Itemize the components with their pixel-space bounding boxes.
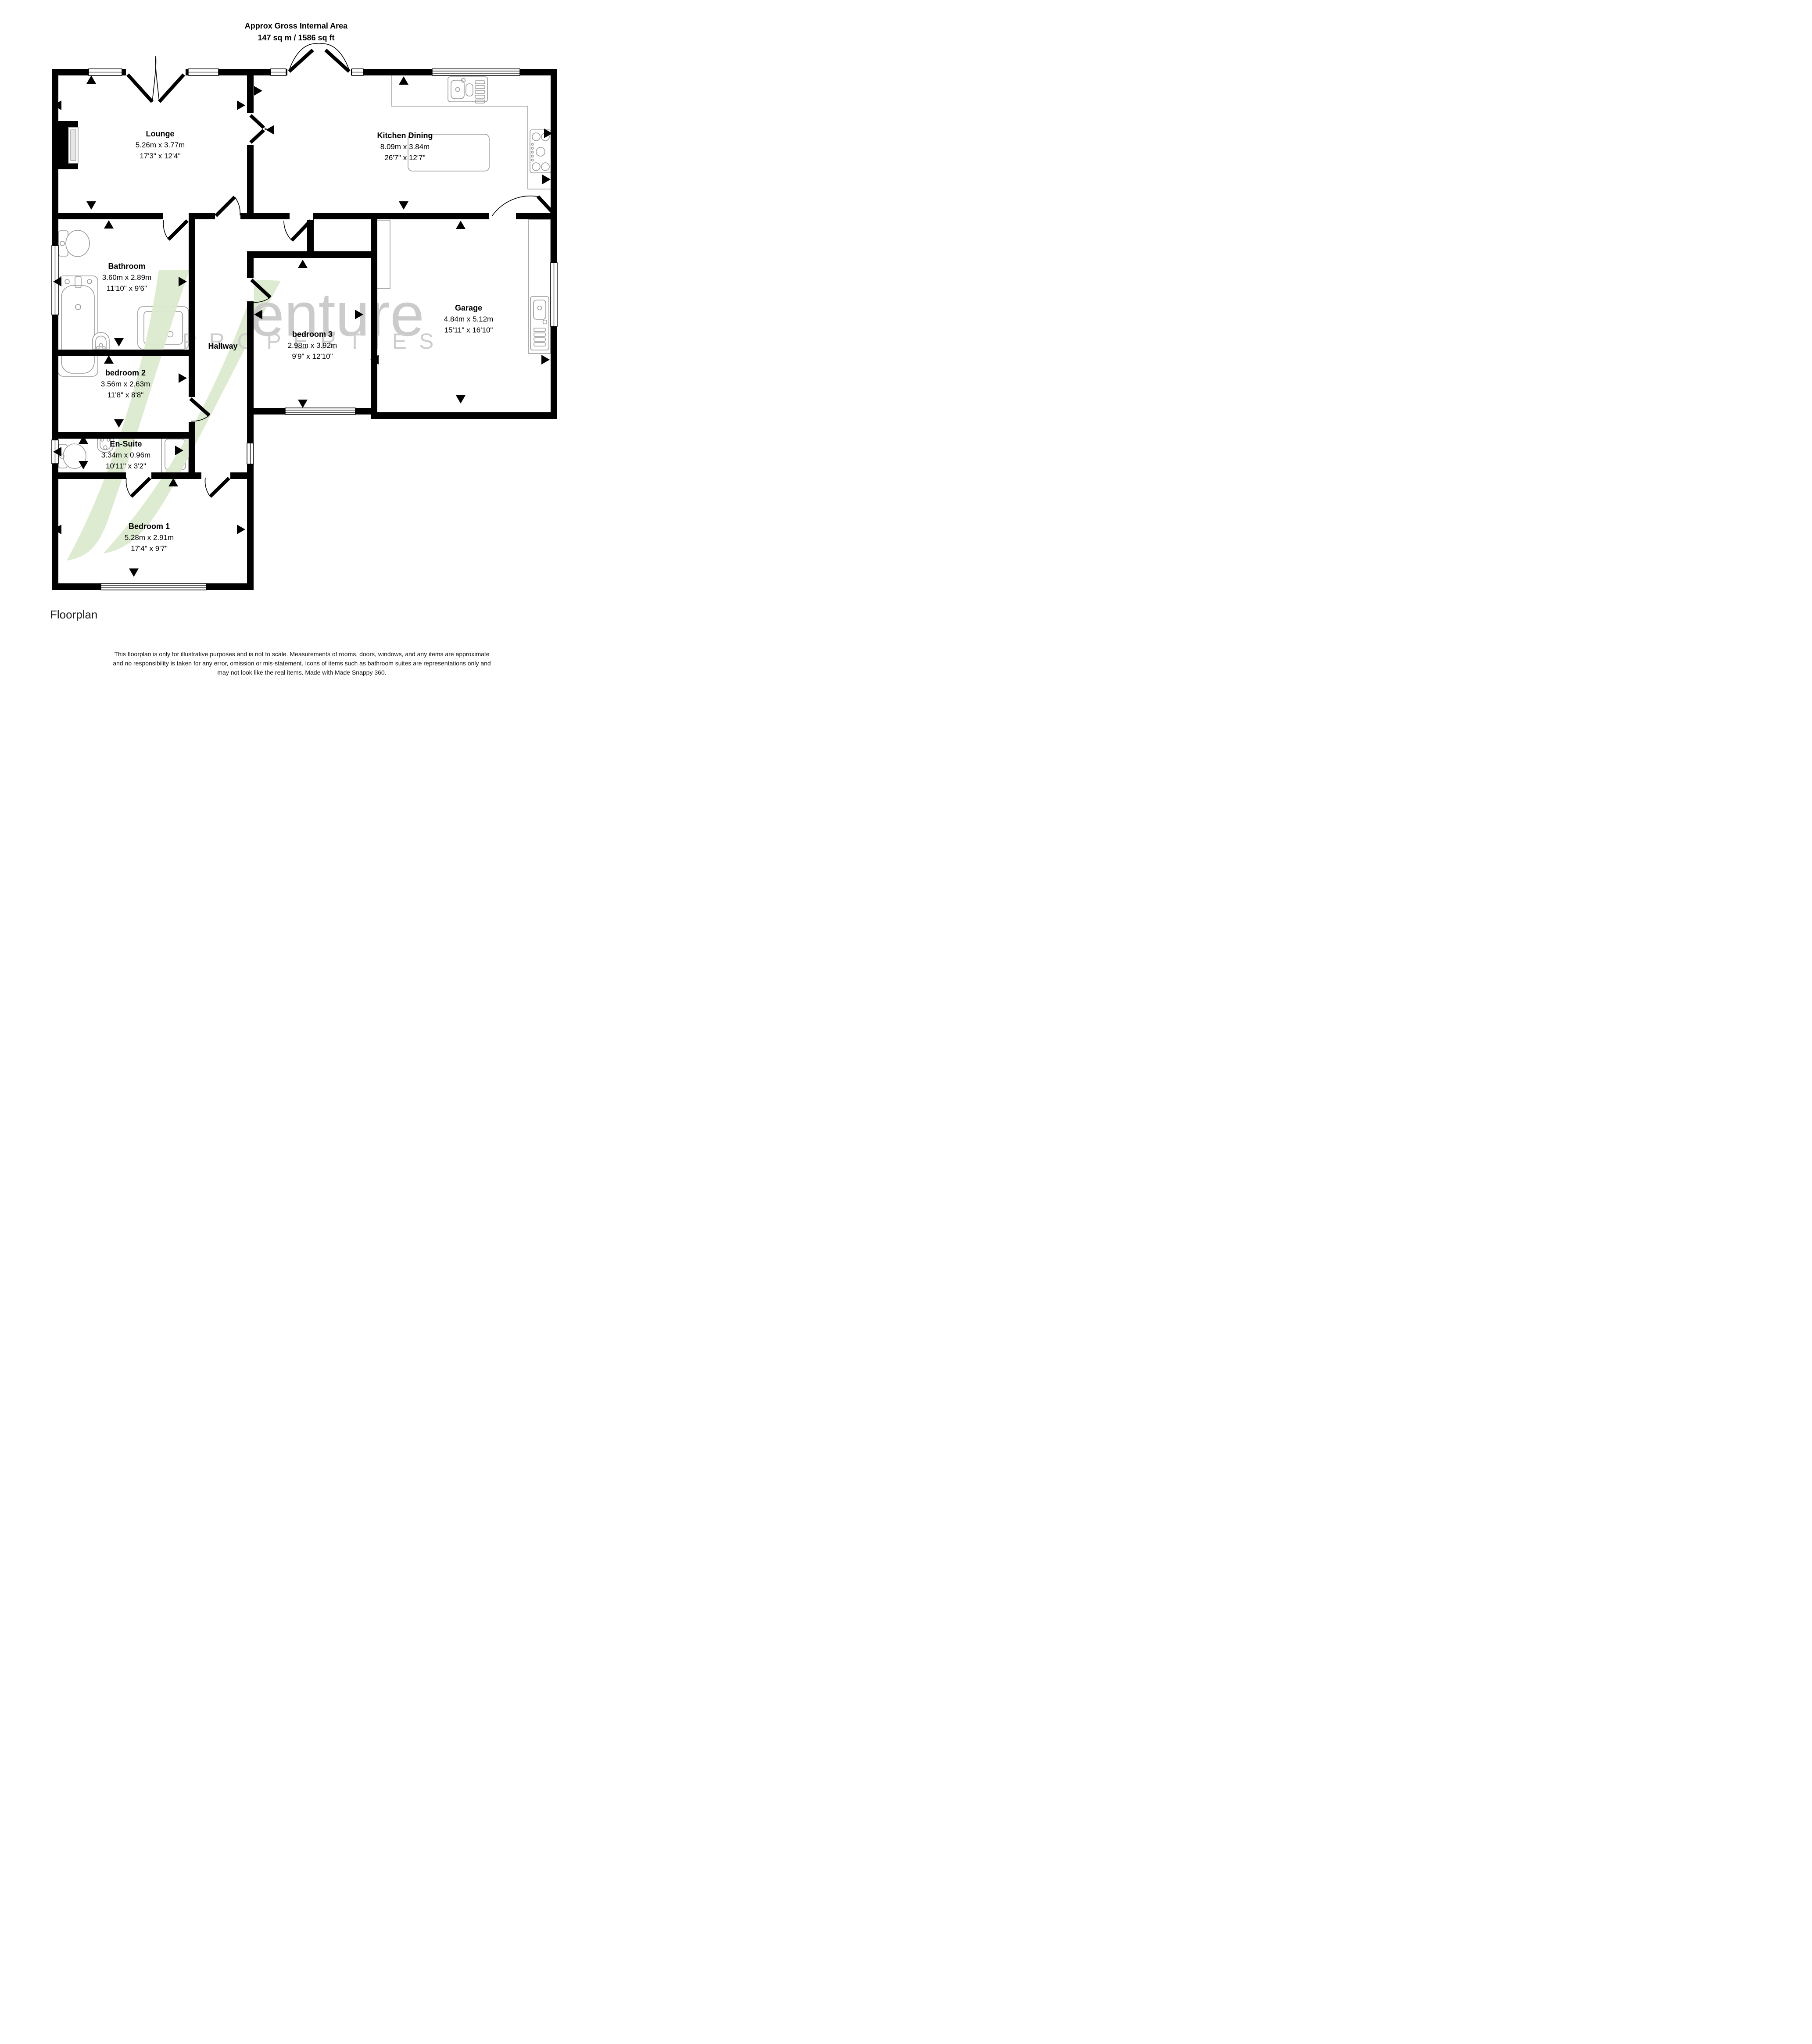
bedroom2-name: bedroom 2	[101, 368, 150, 379]
kitchen-imperial: 26'7" x 12'7"	[377, 152, 433, 163]
hall-window	[271, 69, 286, 75]
bedroom1-metric: 5.28m x 2.91m	[125, 532, 174, 543]
arrow-down-icon	[86, 201, 96, 210]
bedroom3-window	[285, 408, 355, 415]
ensuite-name: En-Suite	[101, 439, 150, 450]
kitchen-name: Kitchen Dining	[377, 130, 433, 141]
arrow-left-icon	[266, 125, 274, 135]
garage-imperial: 15'11" x 16'10"	[444, 325, 493, 336]
arrow-down-icon	[298, 400, 308, 408]
bathroom-name: Bathroom	[102, 261, 151, 272]
garage-sink-icon	[530, 297, 549, 350]
room-label-garage: Garage 4.84m x 5.12m 15'11" x 16'10"	[444, 303, 493, 336]
lounge-imperial: 17'3" x 12'4"	[136, 150, 185, 161]
bathroom-door	[163, 220, 187, 239]
arrow-right-icon	[237, 100, 245, 110]
ensuite-metric: 3.34m x 0.96m	[101, 450, 150, 461]
hall-kitchen-door	[284, 221, 311, 240]
bedroom1-name: Bedroom 1	[125, 521, 174, 532]
room-label-bedroom2: bedroom 2 3.56m x 2.63m 11'8" x 8'8"	[101, 368, 150, 400]
arrow-up-icon	[456, 221, 466, 229]
kitchen-window-small	[352, 69, 363, 75]
disclaimer-line1: This floorplan is only for illustrative …	[69, 650, 534, 659]
garage-metric: 4.84m x 5.12m	[444, 314, 493, 325]
room-label-kitchen-dining: Kitchen Dining 8.09m x 3.84m 26'7" x 12'…	[377, 130, 433, 163]
arrow-right-icon	[237, 525, 245, 534]
ensuite-door	[126, 478, 150, 497]
bedroom1-imperial: 17'4" x 9'7"	[125, 543, 174, 554]
hallway-name: Hallway	[208, 341, 237, 352]
kitchen-metric: 8.09m x 3.84m	[377, 141, 433, 152]
floorplan-caption: Floorplan	[50, 608, 97, 622]
arrow-right-icon	[179, 373, 187, 383]
bedroom2-imperial: 11'8" x 8'8"	[101, 390, 150, 400]
garage-window	[551, 263, 557, 326]
lounge-metric: 5.26m x 3.77m	[136, 139, 185, 150]
bedroom1-window	[101, 583, 206, 590]
arrow-down-icon	[114, 419, 124, 428]
bedroom2-metric: 3.56m x 2.63m	[101, 379, 150, 390]
room-label-ensuite: En-Suite 3.34m x 0.96m 10'11" x 3'2"	[101, 439, 150, 472]
room-label-bedroom1: Bedroom 1 5.28m x 2.91m 17'4" x 9'7"	[125, 521, 174, 554]
arrow-up-icon	[104, 355, 114, 364]
bedroom3-metric: 2.98m x 3.92m	[288, 340, 337, 351]
arrow-down-icon	[129, 568, 139, 577]
arrow-up-icon	[298, 260, 308, 268]
floorplan-page: Approx Gross Internal Area 147 sq m / 15…	[0, 0, 604, 681]
arrow-right-icon	[254, 86, 262, 96]
arrow-up-icon	[104, 220, 114, 229]
arrow-down-icon	[456, 395, 466, 404]
room-label-lounge: Lounge 5.26m x 3.77m 17'3" x 12'4"	[136, 129, 185, 161]
ensuite-imperial: 10'11" x 3'2"	[101, 461, 150, 472]
kitchen-window-large	[432, 69, 520, 75]
toilet-icon	[58, 230, 90, 257]
entrance-double-doors	[289, 43, 349, 71]
garage-counter	[529, 219, 551, 354]
bathroom-imperial: 11'10" x 9'6"	[102, 283, 151, 294]
bedroom3-imperial: 9'9" x 12'10"	[288, 351, 337, 362]
kitchen-sink-icon	[448, 77, 487, 103]
arrow-right-icon	[542, 175, 551, 184]
room-label-hallway: Hallway	[208, 341, 237, 352]
arrow-down-icon	[399, 201, 408, 210]
bath-icon	[58, 276, 98, 376]
lounge-name: Lounge	[136, 129, 185, 139]
room-label-bedroom3: bedroom 3 2.98m x 3.92m 9'9" x 12'10"	[288, 329, 337, 362]
disclaimer: This floorplan is only for illustrative …	[69, 650, 534, 677]
arrow-up-icon	[86, 75, 96, 84]
garage-name: Garage	[444, 303, 493, 314]
hob-icon	[530, 130, 551, 173]
pedestal-sink-icon	[93, 332, 109, 349]
disclaimer-line3: may not look like the real items. Made w…	[69, 668, 534, 677]
arrow-down-icon	[114, 338, 124, 347]
bathroom-metric: 3.60m x 2.89m	[102, 272, 151, 283]
arrow-up-icon	[399, 76, 408, 85]
bedroom3-name: bedroom 3	[288, 329, 337, 340]
lounge-window-1	[89, 69, 122, 75]
disclaimer-line2: and no responsibility is taken for any e…	[69, 659, 534, 668]
lounge-window-2	[188, 69, 218, 75]
arrow-right-icon	[541, 355, 550, 364]
room-label-bathroom: Bathroom 3.60m x 2.89m 11'10" x 9'6"	[102, 261, 151, 294]
hallway-side-window	[247, 443, 254, 464]
lounge-french-doors	[128, 56, 184, 102]
bedroom1-door	[205, 478, 229, 497]
